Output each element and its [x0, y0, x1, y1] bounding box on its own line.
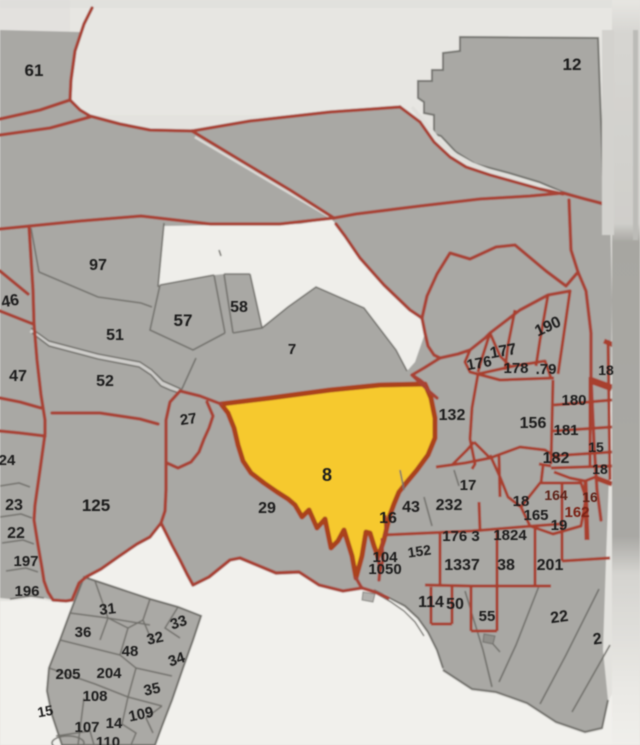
- svg-text:14: 14: [106, 715, 123, 732]
- svg-text:125: 125: [82, 496, 110, 515]
- svg-text:156: 156: [520, 415, 547, 432]
- svg-text:178: 178: [503, 360, 528, 377]
- svg-text:38: 38: [497, 557, 515, 574]
- svg-text:16: 16: [582, 489, 598, 505]
- svg-text:43: 43: [402, 499, 420, 516]
- svg-text:47: 47: [9, 368, 27, 385]
- svg-text:204: 204: [96, 665, 122, 682]
- svg-text:8: 8: [322, 465, 332, 485]
- svg-text:182: 182: [543, 450, 570, 467]
- svg-text:23: 23: [5, 497, 23, 514]
- svg-text:32: 32: [145, 629, 165, 649]
- svg-text:1824: 1824: [493, 527, 527, 544]
- svg-text:36: 36: [75, 624, 92, 641]
- svg-text:205: 205: [55, 666, 80, 683]
- svg-text:12: 12: [563, 55, 582, 74]
- svg-text:35: 35: [142, 680, 162, 700]
- svg-text:55: 55: [479, 608, 496, 625]
- svg-text:180: 180: [561, 392, 586, 409]
- svg-text:97: 97: [89, 257, 107, 274]
- svg-text:51: 51: [106, 327, 124, 344]
- svg-text:31: 31: [98, 600, 116, 619]
- svg-text:232: 232: [436, 497, 463, 514]
- svg-text:181: 181: [553, 422, 578, 439]
- svg-text:.79: .79: [536, 361, 557, 378]
- svg-text:15: 15: [36, 702, 54, 720]
- svg-text:110: 110: [96, 734, 120, 745]
- svg-text:197: 197: [13, 553, 38, 570]
- svg-text:162: 162: [564, 504, 589, 521]
- svg-text:24: 24: [0, 452, 16, 469]
- svg-text:1337: 1337: [444, 557, 480, 574]
- svg-text:27: 27: [179, 410, 198, 429]
- svg-text:15: 15: [588, 439, 604, 455]
- svg-text:164: 164: [544, 487, 568, 503]
- svg-text:114: 114: [418, 594, 444, 611]
- svg-text:176 3: 176 3: [442, 528, 480, 545]
- svg-text:48: 48: [122, 643, 139, 660]
- svg-text:46: 46: [0, 292, 21, 312]
- svg-text:201: 201: [537, 557, 564, 574]
- svg-text:29: 29: [258, 500, 276, 517]
- svg-text:16: 16: [379, 510, 397, 527]
- svg-text:108: 108: [82, 688, 107, 705]
- svg-text:18: 18: [592, 461, 608, 477]
- svg-text:152: 152: [407, 541, 433, 560]
- svg-text:61: 61: [25, 61, 44, 80]
- svg-text:17: 17: [460, 477, 477, 494]
- svg-text:7: 7: [288, 341, 296, 358]
- svg-text:50: 50: [446, 596, 464, 613]
- svg-text:18: 18: [598, 362, 614, 378]
- svg-text:57: 57: [174, 311, 193, 330]
- svg-text:58: 58: [230, 299, 248, 316]
- svg-text:1050: 1050: [368, 561, 401, 578]
- svg-text:52: 52: [96, 373, 114, 390]
- svg-text:22: 22: [7, 525, 25, 542]
- svg-text:165: 165: [523, 507, 548, 524]
- svg-text:196: 196: [14, 583, 39, 600]
- svg-text:22: 22: [549, 608, 569, 627]
- svg-text:132: 132: [439, 407, 466, 424]
